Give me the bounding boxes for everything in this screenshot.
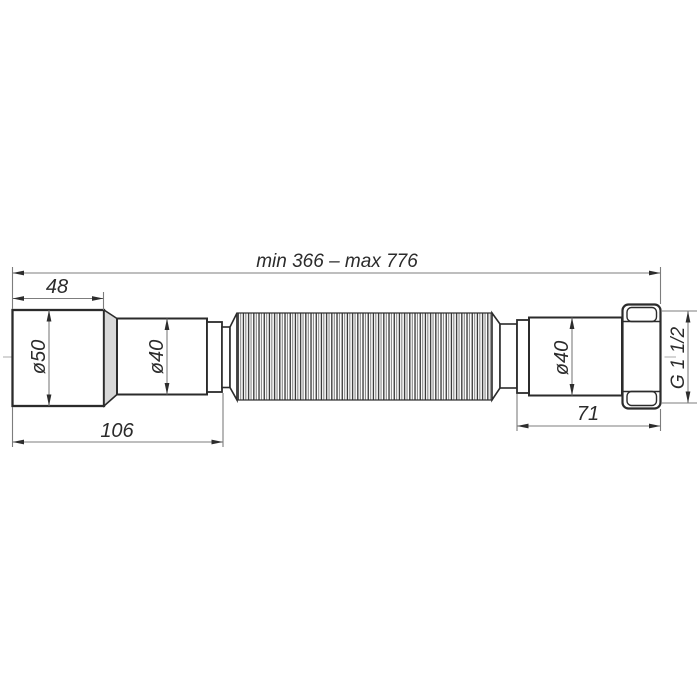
dim-text-right-section-length: 71	[577, 403, 599, 425]
dim-text-right-pipe-diameter: ø40	[551, 341, 573, 375]
technical-drawing-page: min 366 – max 776 48 106 71 ø50 ø40 ø40 …	[0, 0, 700, 700]
dim-text-overall-length: min 366 – max 776	[256, 251, 418, 272]
right-pipe-40-body	[529, 318, 622, 396]
right-corrugation-taper	[492, 313, 500, 400]
left-corrugation-taper	[230, 313, 237, 400]
left-collar-ring	[207, 322, 222, 392]
left-neck	[222, 327, 230, 388]
flexible-waste-pipe-drawing: min 366 – max 776 48 106 71 ø50 ø40 ø40 …	[0, 0, 700, 700]
dim-text-left-pipe-diameter: ø40	[146, 340, 168, 374]
chamfer-transition	[104, 310, 117, 406]
right-neck	[500, 324, 517, 388]
dim-text-left-section-length: 106	[100, 420, 134, 442]
dim-text-thread-size: G 1 1/2	[668, 326, 689, 389]
corrugated-hose	[237, 313, 492, 400]
inlet-cup-50-body	[13, 310, 105, 406]
right-collar-ring	[517, 320, 529, 393]
dim-text-inlet-length: 48	[46, 276, 68, 298]
dim-text-inlet-diameter: ø50	[28, 340, 50, 374]
